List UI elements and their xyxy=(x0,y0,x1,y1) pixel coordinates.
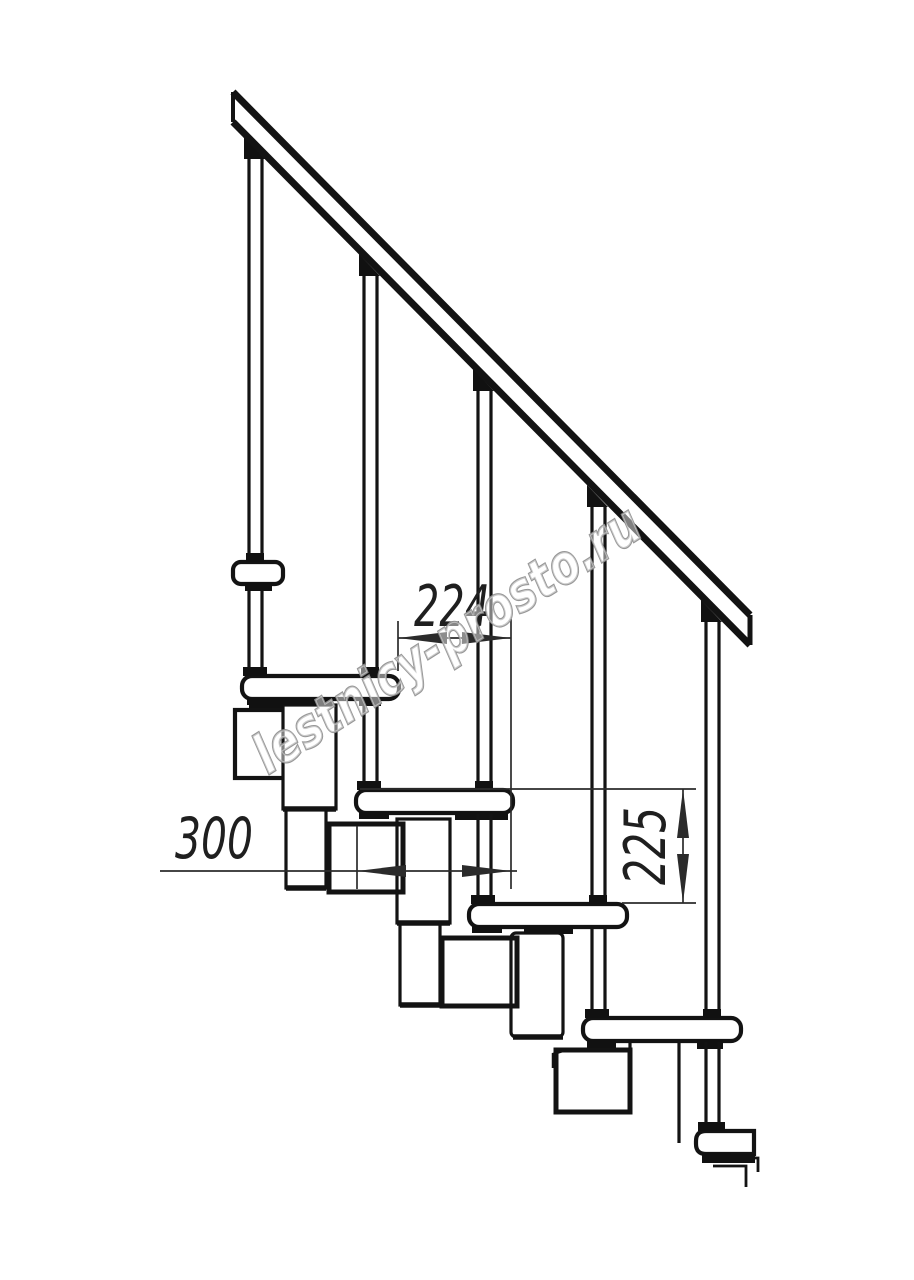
tread-2 xyxy=(356,790,513,813)
support-box xyxy=(556,1050,630,1112)
clamp xyxy=(471,895,495,904)
arrowhead-right xyxy=(462,865,511,877)
clamp xyxy=(245,583,272,591)
staircase-technical-drawing: 224 300 225 lestnicy-prosto.ru xyxy=(0,0,914,1280)
support-modules xyxy=(235,705,758,1187)
clamp xyxy=(589,895,607,904)
support-box xyxy=(442,938,517,1006)
clamp xyxy=(587,1040,616,1048)
support-box xyxy=(329,824,403,892)
support-post xyxy=(286,810,326,888)
dimension-value-tread-depth: 300 xyxy=(175,806,253,872)
floor-landing-tread xyxy=(696,1131,754,1154)
clamp xyxy=(249,698,283,708)
dimension-value-rise: 225 xyxy=(613,807,679,885)
clamp xyxy=(703,1009,721,1018)
clamp xyxy=(455,812,508,820)
tread-3 xyxy=(469,904,627,927)
clamp xyxy=(524,926,573,934)
upper-platform-tread xyxy=(233,562,283,584)
clamp xyxy=(246,553,264,562)
floor-step-profile xyxy=(713,1166,746,1187)
clamp xyxy=(698,1122,725,1131)
clamp xyxy=(472,926,502,933)
clamp xyxy=(359,812,389,819)
clamp xyxy=(702,1153,731,1163)
support-post xyxy=(400,923,440,1005)
clamp xyxy=(731,1154,755,1163)
baluster-rod-1 xyxy=(249,159,262,668)
clamp xyxy=(585,1009,609,1018)
clamp xyxy=(243,667,267,676)
drawing-canvas: 224 300 225 lestnicy-prosto.ru xyxy=(0,0,914,1280)
tread-4 xyxy=(583,1018,741,1041)
